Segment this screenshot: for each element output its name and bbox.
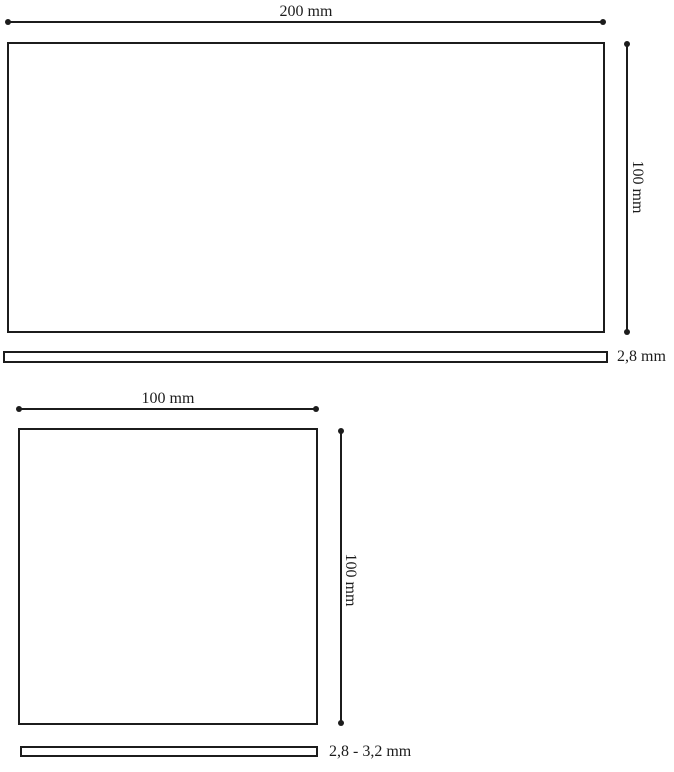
dimension-endpoint-dot xyxy=(624,329,630,335)
large-tile-height-label: 100 mm xyxy=(628,157,646,217)
small-tile-height-label: 100 mm xyxy=(341,550,359,610)
small-tile-face xyxy=(18,428,318,725)
large-tile-width-dimension-line xyxy=(8,21,604,23)
dimension-endpoint-dot xyxy=(338,720,344,726)
dimension-endpoint-dot xyxy=(624,41,630,47)
small-tile-width-dimension-line xyxy=(19,408,316,410)
dimension-endpoint-dot xyxy=(5,19,11,25)
large-tile-face xyxy=(7,42,605,333)
small-tile-side-view xyxy=(20,746,318,757)
large-tile-width-label: 200 mm xyxy=(251,3,361,21)
large-tile-side-view xyxy=(3,351,608,363)
small-tile-width-label: 100 mm xyxy=(113,390,223,408)
small-tile-thickness-label: 2,8 - 3,2 mm xyxy=(329,743,411,761)
dimension-endpoint-dot xyxy=(338,428,344,434)
dimension-endpoint-dot xyxy=(16,406,22,412)
dimension-endpoint-dot xyxy=(600,19,606,25)
dimension-endpoint-dot xyxy=(313,406,319,412)
large-tile-thickness-label: 2,8 mm xyxy=(617,348,666,366)
technical-drawing-canvas: 200 mm 100 mm 2,8 mm 100 mm 100 mm 2,8 -… xyxy=(0,0,674,772)
